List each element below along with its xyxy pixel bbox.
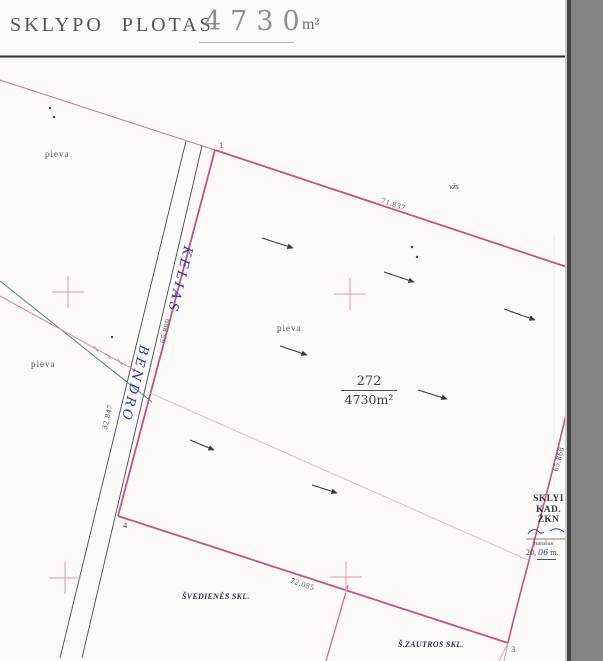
survey-grid-crosses xyxy=(49,276,366,594)
parcel-label: 272 4730m² xyxy=(341,374,397,407)
stamp-line3: ŽKN xyxy=(529,515,568,526)
neighbor-label-se: Š.ZAUTROS SKL. xyxy=(398,640,464,649)
stamp-block: SKLYI KAD. ŽKN xyxy=(529,494,568,526)
scanner-background xyxy=(571,0,603,661)
faint-diagonal-line xyxy=(148,392,528,560)
slope-arrow xyxy=(280,346,307,355)
vertex3-tick xyxy=(504,643,508,661)
slope-arrow xyxy=(504,309,535,320)
survey-map-drawing xyxy=(0,0,603,661)
date-prefix: 20, xyxy=(526,548,536,557)
stamp-line2: KAD. xyxy=(529,505,568,516)
survey-cross xyxy=(330,561,362,593)
plot-area-unit: m² xyxy=(302,16,319,34)
boundary-east xyxy=(508,410,567,643)
survey-cross xyxy=(334,278,366,310)
land-use-label: pieva xyxy=(45,149,70,159)
slope-arrow xyxy=(262,238,293,248)
parcel-area: 4730m² xyxy=(341,391,397,407)
vertex-3: 3 xyxy=(511,644,515,654)
date-underline xyxy=(537,559,556,560)
slope-arrow xyxy=(418,390,447,399)
stamp-date: 20, 06 m. xyxy=(526,548,558,557)
vertex-1: 1 xyxy=(219,140,223,150)
page-edge-shadow xyxy=(567,0,571,661)
page-title: SKLYPO PLOTAS xyxy=(10,14,214,37)
survey-cross xyxy=(52,276,84,308)
date-suffix: m. xyxy=(550,548,558,557)
slope-arrows xyxy=(190,238,535,493)
boundary-south xyxy=(118,516,508,643)
signature-handwriting xyxy=(528,529,564,534)
signature-caption: parašas xyxy=(534,540,553,547)
plot-area-value: 4730 xyxy=(204,6,309,37)
slope-arrow xyxy=(312,485,337,493)
map-dots xyxy=(49,107,418,338)
neighbor-label-sw: ŠVEDIENĖS SKL. xyxy=(182,592,250,601)
plot-area-underline xyxy=(199,42,294,43)
south-branch-line xyxy=(326,585,348,661)
fence-line xyxy=(0,296,140,373)
road-edge-right xyxy=(82,146,202,658)
parcel-number: 272 xyxy=(341,374,397,391)
slope-arrow xyxy=(190,440,214,450)
scanned-survey-plan: SKLYPO PLOTAS 4730 m² pieva pieva pieva … xyxy=(0,0,603,661)
adjacent-boundary-line xyxy=(0,80,215,150)
land-use-label: pieva xyxy=(31,359,56,369)
vertex-4: 4 xyxy=(123,520,127,530)
stamp-line1: SKLYI xyxy=(529,494,568,505)
slope-arrow xyxy=(384,272,414,282)
boundary-continuation xyxy=(499,643,508,661)
page-edge-highlight xyxy=(565,0,567,661)
land-use-label: pieva xyxy=(277,323,302,333)
land-use-note: vžs xyxy=(449,182,459,191)
survey-cross xyxy=(49,562,81,594)
date-handwritten: 06 xyxy=(538,548,548,557)
